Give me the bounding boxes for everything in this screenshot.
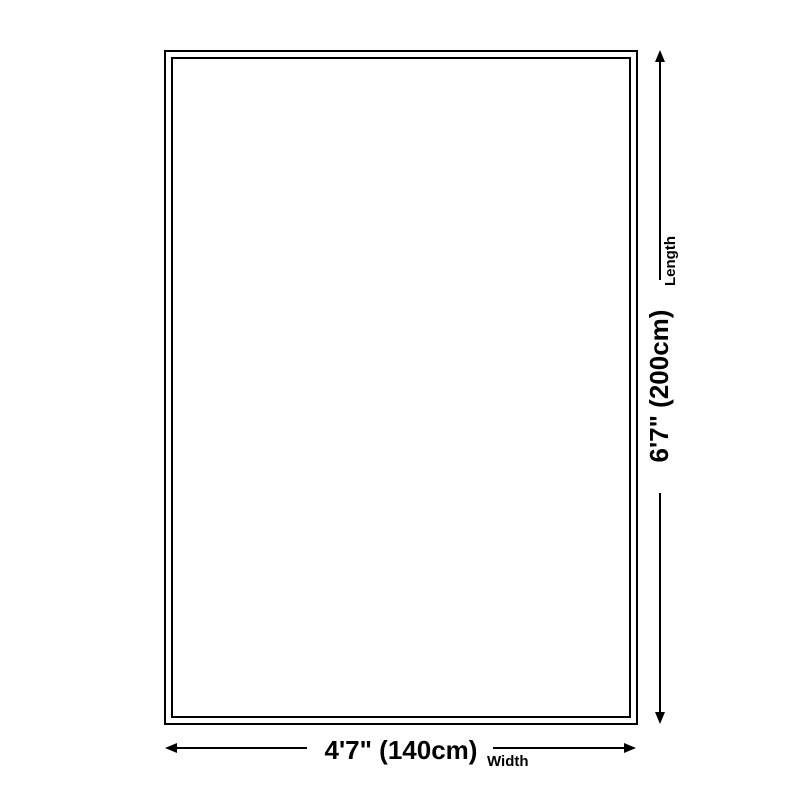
- size-diagram: Length 6'7" (200cm) 4'7" (140cm) Width: [0, 0, 800, 800]
- arrow-right-icon: [624, 743, 636, 753]
- width-arrow-line-right: [493, 747, 624, 749]
- length-arrow-line-top: [659, 61, 661, 280]
- product-outline-inner-border: [171, 57, 631, 718]
- arrow-down-icon: [655, 712, 665, 724]
- width-arrow-line-left: [176, 747, 307, 749]
- width-label: Width: [487, 754, 529, 770]
- product-outline: [164, 50, 638, 725]
- length-label: Length: [663, 231, 679, 291]
- width-value: 4'7" (140cm): [316, 735, 486, 765]
- length-value: 6'7" (200cm): [644, 301, 674, 471]
- length-arrow-line-bottom: [659, 493, 661, 713]
